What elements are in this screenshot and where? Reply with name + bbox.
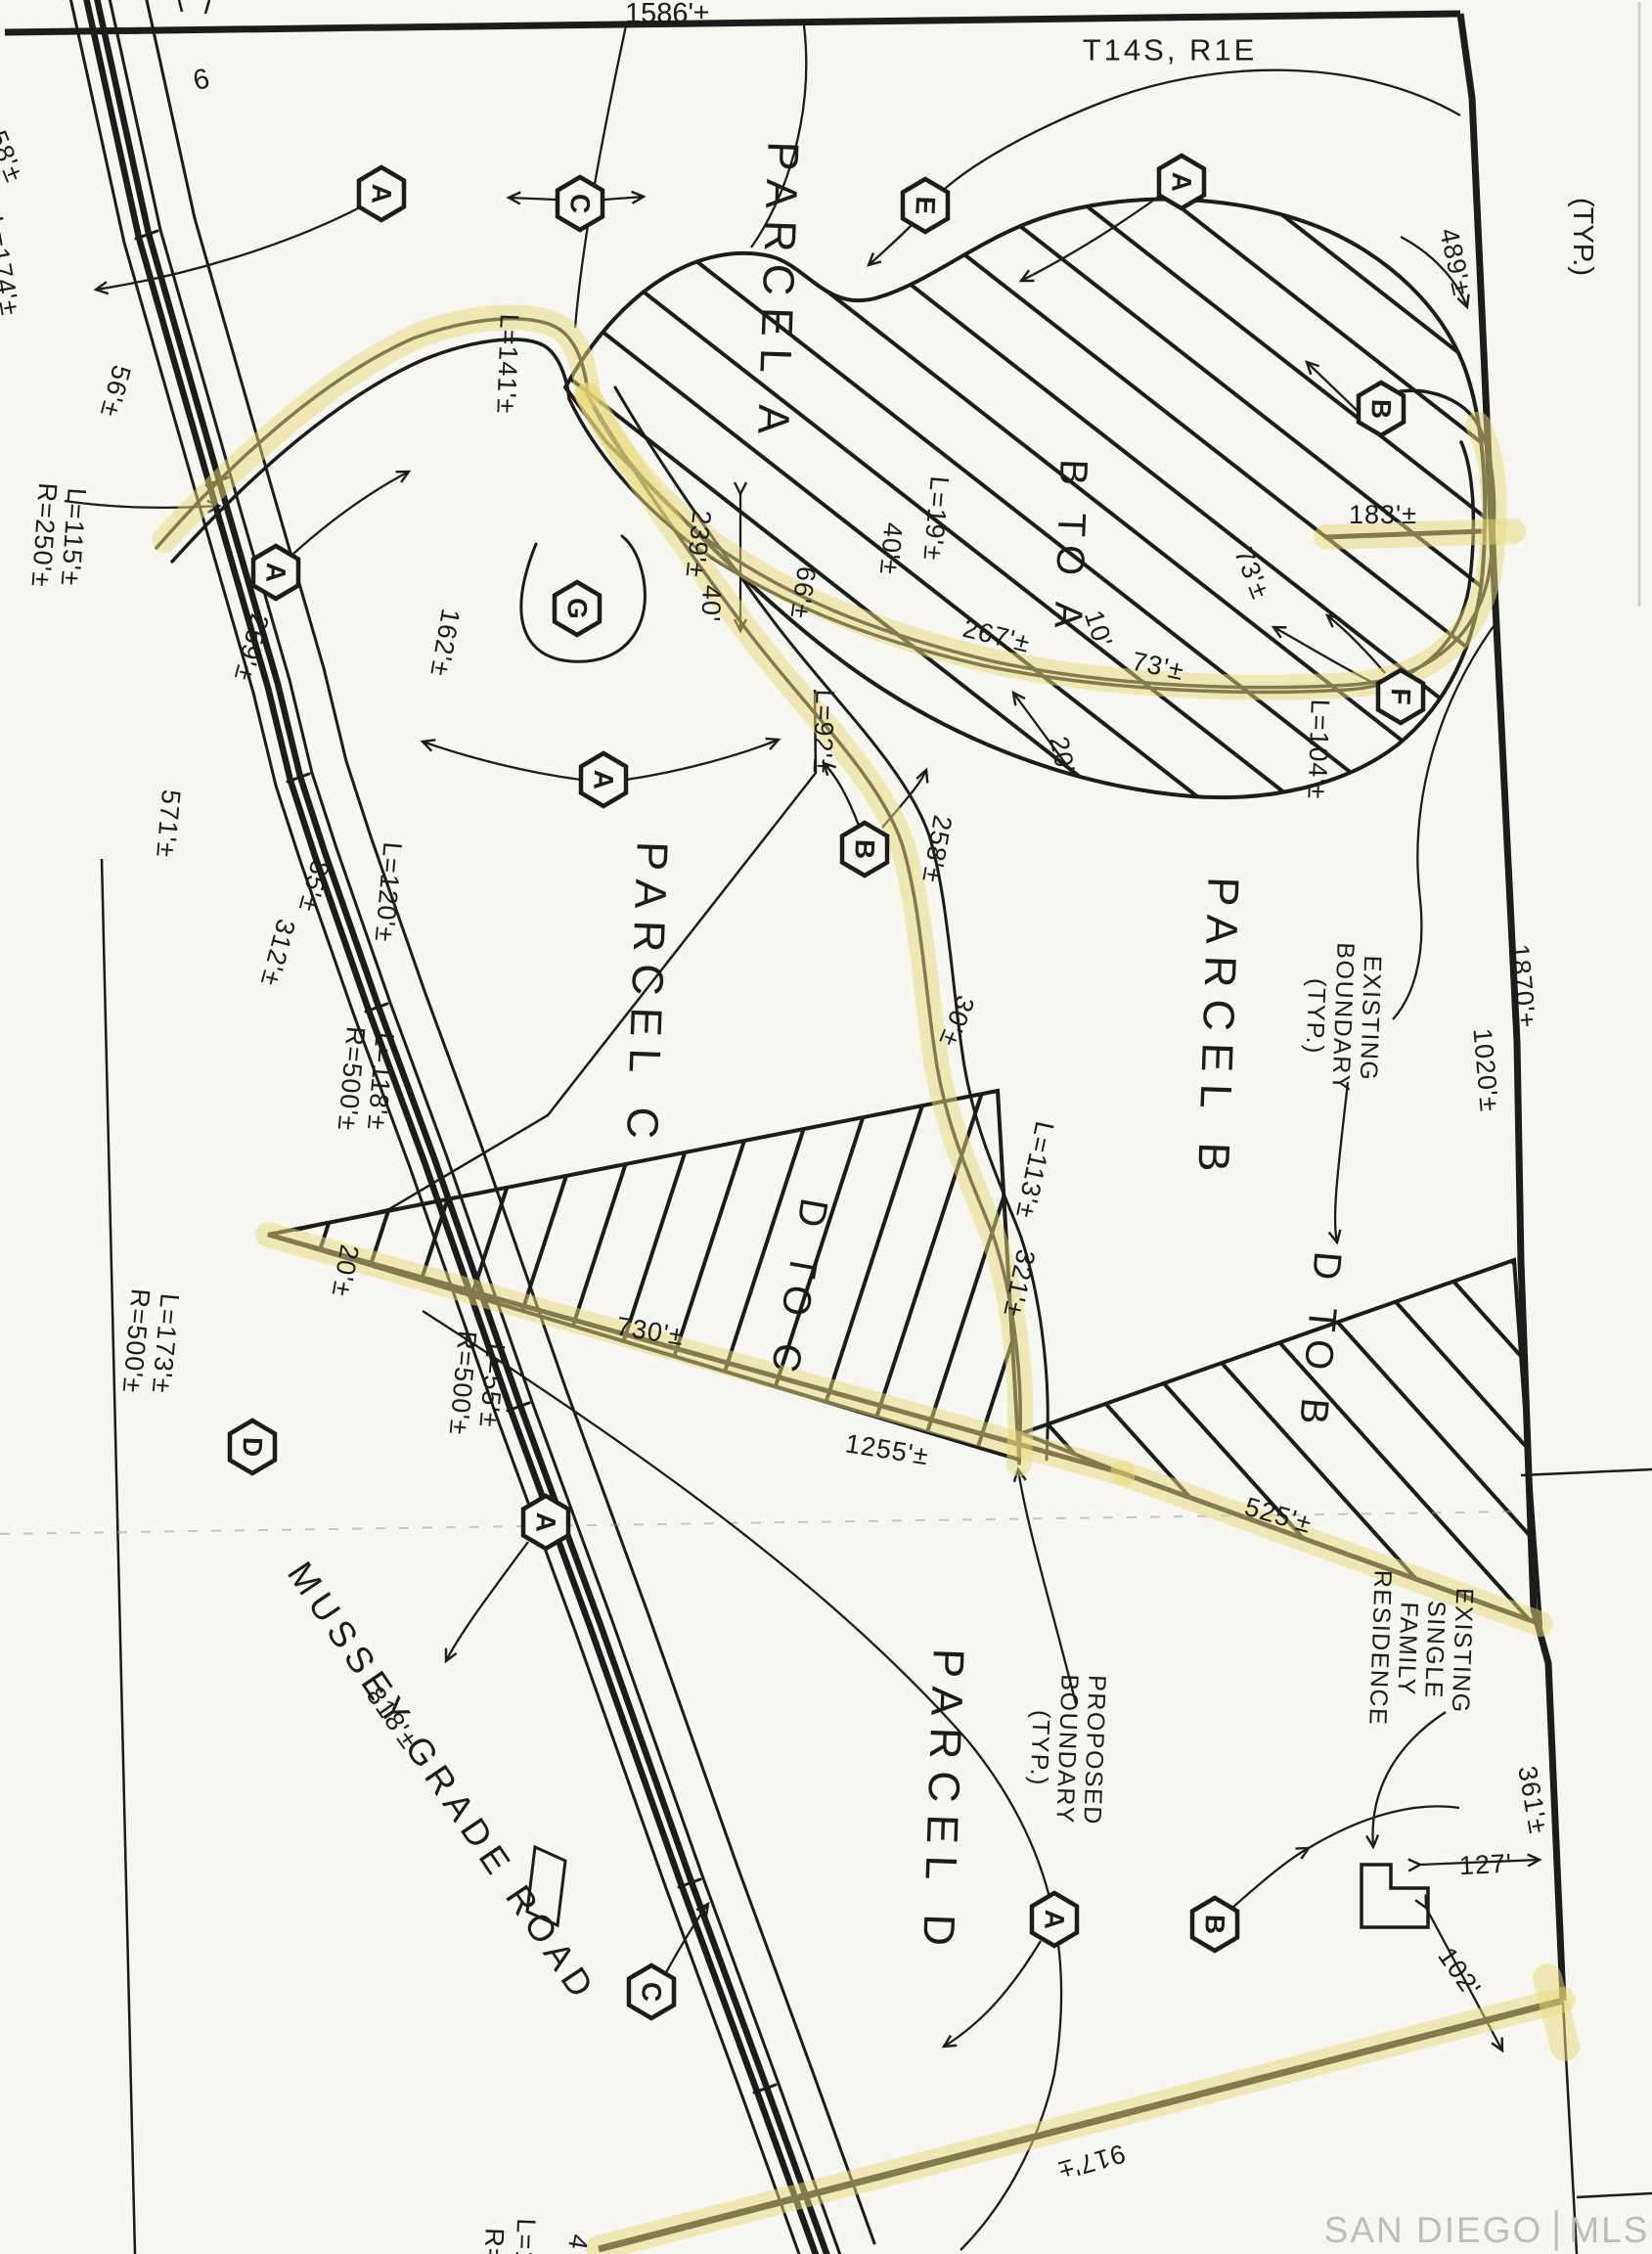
map-linework bbox=[0, 0, 1652, 2254]
marker-letter: B bbox=[1365, 398, 1397, 419]
note-line: BOUNDARY bbox=[1050, 1674, 1083, 1826]
note-line: EXISTING bbox=[1354, 943, 1386, 1094]
mls-watermark: SAN DIEGO MLS bbox=[1324, 2210, 1650, 2251]
existing-boundary-note: EXISTING BOUNDARY (TYP.) bbox=[1299, 941, 1386, 1094]
dimension-label-curve-l173: L=173'± R=500'± bbox=[116, 1287, 185, 1397]
transfer-b-to-a-label: B TO A bbox=[1045, 459, 1094, 638]
top-width-label: 1586'± bbox=[625, 0, 709, 29]
scanned-parcel-map: A C E A B A G F A B D A A B C 1586'± T14… bbox=[0, 0, 1652, 2254]
edge-fragment-label: R= bbox=[478, 2228, 510, 2254]
edge-fragment-label: L=1 bbox=[510, 2218, 541, 2254]
dimension-label-183: 183'± bbox=[1349, 500, 1417, 529]
marker-letter: A bbox=[260, 562, 291, 582]
parcel-c-label: PARCEL C bbox=[616, 840, 676, 1151]
dimension-label-l92: L=92'± bbox=[807, 689, 839, 775]
house-outline bbox=[1362, 1865, 1428, 1927]
marker-letter: F bbox=[1385, 688, 1416, 705]
typ-note-label: (TYP.) bbox=[1567, 198, 1598, 276]
dimension-label-l141: L=141'± bbox=[491, 313, 524, 415]
dimension-label-127: 127' bbox=[1458, 1848, 1513, 1880]
watermark-text: MLS bbox=[1569, 2210, 1649, 2250]
note-line: FAMILY bbox=[1391, 1570, 1424, 1727]
note-line: RESIDENCE bbox=[1363, 1569, 1397, 1726]
marker-letter: D bbox=[237, 1436, 268, 1457]
marker-letter: B bbox=[849, 838, 880, 859]
township-range-label: T14S, R1E bbox=[1083, 34, 1258, 68]
parcel-b-label: PARCEL B bbox=[1187, 876, 1247, 1184]
parcel-d-label: PARCEL D bbox=[913, 1647, 972, 1959]
parcel-a-label: PARCEL A bbox=[747, 141, 807, 447]
proposed-boundary-note: PROPOSED BOUNDARY (TYP.) bbox=[1023, 1673, 1110, 1826]
dimension-label-571: 571'± bbox=[151, 789, 186, 859]
note-line: EXISTING bbox=[1446, 1572, 1479, 1729]
dimension-label-curve-l55: L=55'± R=500'± bbox=[443, 1330, 512, 1439]
dimension-label-curve-l115: L=115'± R=250'± bbox=[25, 481, 92, 590]
watermark-divider bbox=[1554, 2210, 1557, 2251]
residence-note: EXISTING SINGLE FAMILY RESIDENCE bbox=[1363, 1569, 1478, 1729]
dimension-label-40a: 40' bbox=[695, 584, 727, 622]
marker-letter: C bbox=[564, 193, 596, 213]
marker-letter: A bbox=[530, 1511, 561, 1532]
marker-letter: E bbox=[910, 196, 941, 215]
marker-letter: A bbox=[1039, 1909, 1070, 1929]
dimension-label-40b: 40'± bbox=[874, 521, 909, 576]
note-line: BOUNDARY bbox=[1326, 942, 1359, 1093]
marker-letter: G bbox=[561, 598, 593, 620]
dimension-label-curve-l118: L=118'± R=500'± bbox=[332, 1025, 400, 1135]
note-line: PROPOSED bbox=[1078, 1675, 1110, 1826]
watermark-text: SAN DIEGO bbox=[1324, 2210, 1543, 2250]
hatch-area-d-to-b bbox=[1022, 1260, 1540, 1624]
marker-letter: C bbox=[636, 1981, 667, 2002]
marker-letter: A bbox=[366, 183, 397, 203]
marker-letter: A bbox=[1166, 171, 1197, 192]
dimension-label-l104: L=104'± bbox=[1302, 699, 1335, 800]
marker-letter: A bbox=[588, 769, 619, 789]
marker-letter: B bbox=[1199, 1914, 1230, 1934]
